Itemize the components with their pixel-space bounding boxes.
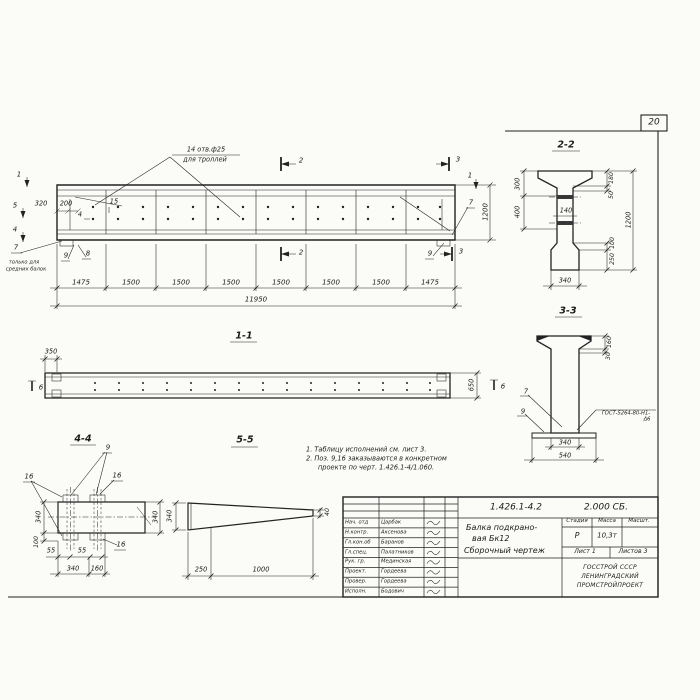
document-code: 2.000 СБ. (584, 504, 628, 513)
dim-320: 320 (35, 201, 48, 208)
dim-segment-8: 1475 (421, 280, 439, 287)
pos-label-15: 15 (110, 199, 118, 206)
holes-callout-line2: для троллей (183, 157, 227, 164)
page-number: 20 (648, 119, 659, 128)
dim-350: 350 (45, 349, 58, 356)
dim-340-22: 340 (559, 278, 572, 285)
signature-role: Нач. отд (345, 520, 368, 525)
signature-name: Гордеева (381, 570, 407, 575)
dim-340-55: 340 (167, 510, 174, 523)
section-marker-1-left: 1 (17, 172, 21, 179)
section-5-5-view (172, 447, 324, 580)
pos-label-7-right: 7 (469, 200, 473, 207)
signature-role: Исполн. (345, 589, 367, 594)
pos-label-16-left: 16 (25, 474, 34, 481)
dim-30: 30 (606, 352, 612, 360)
pos-label-16-right: 16 (113, 473, 122, 480)
column-stage: Стадия (566, 519, 587, 525)
dim-340-33: 340 (559, 440, 572, 447)
signature-name: Царбак (381, 520, 401, 525)
pos-label-7-33: 7 (524, 389, 528, 396)
dim-55-b: 55 (78, 548, 86, 555)
note-line-2: 2. Поз. 9,16 заказываются в конкретном (306, 456, 447, 463)
dim-180: 180 (609, 172, 615, 184)
section-3-3-view (517, 317, 656, 463)
signature-name: Бодович (381, 589, 404, 594)
drawing-linework (0, 0, 700, 700)
dim-55-a: 55 (47, 548, 55, 555)
note-line-1: 1. Таблицу исполнений см. лист 3. (306, 447, 426, 454)
organization-line2: ЛЕНИНГРАДСКИЙ (581, 574, 639, 580)
pos-label-9-33: 9 (521, 409, 525, 416)
section-4-4-view (23, 445, 164, 577)
dim-400: 400 (515, 206, 522, 219)
signature-role: Н.контр. (345, 530, 368, 535)
signature-name: Баранов (381, 540, 404, 545)
dim-segment-7: 1500 (372, 280, 390, 287)
dim-segment-2: 1500 (122, 280, 140, 287)
sheet-number: Лист 1 (574, 549, 596, 555)
dim-200: 200 (60, 201, 73, 208)
dim-1200-main: 1200 (483, 203, 490, 221)
dim-50: 50 (609, 191, 615, 199)
section-4-4-title: 4-4 (74, 434, 91, 444)
dim-1200-22: 1200 (626, 212, 633, 229)
dim-340-44-right: 340 (153, 511, 160, 524)
pos-label-4: 4 (78, 212, 82, 219)
drawing-title-line1: Балка подкрано- (466, 524, 537, 532)
pos-label-9-44: 9 (106, 445, 110, 452)
section-marker-2-top: 2 (299, 158, 303, 165)
drawing-sheet: 20 14 отв.ф25 для троллей 1 5 4 1 2 2 3 … (0, 0, 700, 700)
pos-label-9-left: 9 (64, 253, 68, 260)
dim-segment-1: 1475 (72, 280, 90, 287)
section-3-3-title: 3-3 (559, 306, 576, 316)
section-2-2-title: 2-2 (557, 140, 574, 150)
section-marker-4: 4 (13, 227, 17, 234)
section-marker-6-left: 6 (39, 385, 43, 392)
dim-segment-3: 1500 (172, 280, 190, 287)
section-marker-3-top: 3 (456, 157, 460, 164)
pos-label-8: 8 (86, 251, 90, 258)
stage-value: Р (575, 532, 580, 540)
signature-name: Мединская (381, 560, 411, 565)
signature-name: Гордеева (381, 580, 407, 585)
dim-250-55: 250 (195, 567, 208, 574)
section-1-1-view (28, 342, 498, 401)
dim-1000: 1000 (253, 567, 270, 574)
dim-540: 540 (559, 453, 572, 460)
section-2-2-view (520, 151, 637, 290)
dim-total-length: 11950 (245, 297, 267, 304)
pos-label-9-right: 9 (428, 251, 432, 258)
dim-300: 300 (515, 178, 522, 191)
drawing-title-line2: вая Бк12 (472, 535, 509, 543)
weld-spec-line2: Δ6 (644, 417, 651, 422)
signature-role: Рук. гр. (345, 560, 365, 565)
dim-340-44-left: 340 (36, 511, 43, 524)
dim-160-44: 160 (91, 566, 104, 573)
signature-role: Провер. (345, 580, 367, 585)
signature-name: Аксенова (381, 530, 407, 535)
section-marker-5: 5 (13, 203, 17, 210)
signature-role: Гл.спец. (345, 550, 367, 555)
section-marker-6-right: 6 (501, 384, 505, 391)
dim-250: 250 (610, 253, 616, 265)
dim-segment-6: 1500 (322, 280, 340, 287)
dim-140: 140 (560, 208, 573, 215)
dim-100-22: 100 (610, 237, 616, 249)
holes-callout-line1: 14 отв.ф25 (187, 147, 225, 154)
section-5-5-title: 5-5 (236, 435, 253, 445)
middle-beams-note-line2: средних балок (6, 267, 46, 272)
note-line-3: проекте по черт. 1.426.1-4/1.060. (318, 465, 434, 472)
drawing-title-line3: Сборочный чертеж (464, 547, 545, 555)
section-marker-2-bottom: 2 (299, 250, 303, 257)
pos-label-7-left: 7 (14, 245, 18, 252)
dim-160-33: 160 (607, 336, 613, 348)
dim-650: 650 (469, 379, 476, 392)
sheet-count: Листов 3 (618, 549, 647, 555)
pos-label-16-bottom: 16 (117, 542, 126, 549)
middle-beams-note-line1: только для (9, 260, 40, 265)
section-marker-1-right: 1 (468, 173, 472, 180)
signature-name: Палатников (381, 550, 414, 555)
dim-segment-4: 1500 (222, 280, 240, 287)
organization-line3: ПРОМСТРОЙПРОЕКТ (577, 583, 643, 589)
trolley-holes (92, 206, 441, 220)
column-scale: Масшт. (628, 519, 650, 525)
dim-340-44-bottom: 340 (67, 566, 80, 573)
signature-role: Гл.кон.об (345, 540, 371, 545)
section-1-1-title: 1-1 (235, 331, 252, 341)
organization-line1: ГОССТРОЙ СССР (583, 565, 637, 571)
dim-100-44: 100 (34, 536, 40, 548)
dim-segment-5: 1500 (272, 280, 290, 287)
dim-40: 40 (325, 508, 331, 516)
mass-value: 10,3т (597, 533, 617, 540)
document-number: 1.426.1-4.2 (490, 504, 542, 513)
signature-role: Проект. (345, 570, 366, 575)
column-mass: Масса (598, 519, 616, 525)
section-marker-3-bottom: 3 (459, 249, 463, 256)
